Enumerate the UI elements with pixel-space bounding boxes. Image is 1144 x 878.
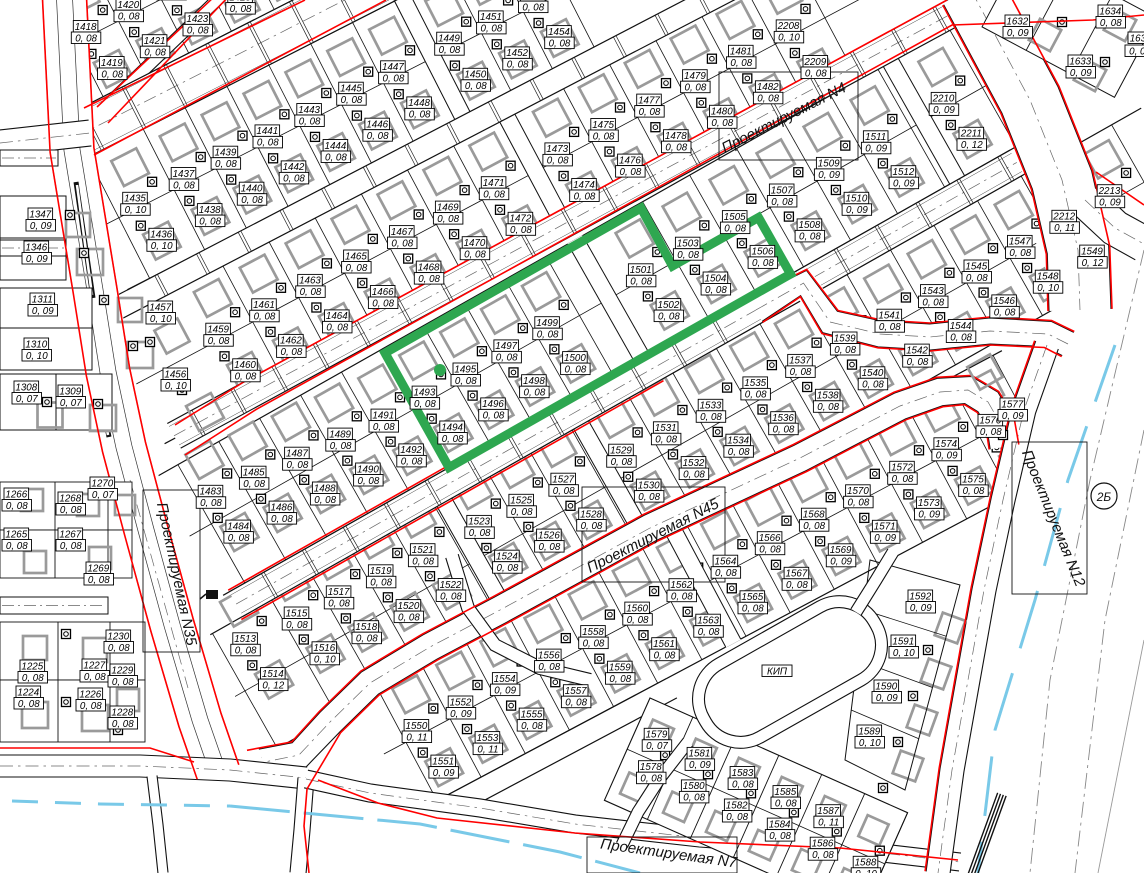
svg-text:1487: 1487 [286,449,308,460]
svg-text:0, 08: 0, 08 [511,507,533,518]
svg-text:0, 08: 0, 08 [330,441,352,452]
svg-text:0, 08: 0, 08 [757,94,779,105]
svg-text:1486: 1486 [271,502,293,513]
svg-text:0, 08: 0, 08 [325,152,347,163]
svg-text:0, 08: 0, 08 [803,521,825,532]
svg-text:0, 08: 0, 08 [241,195,263,206]
svg-text:1548: 1548 [1037,272,1059,283]
svg-text:0, 07: 0, 07 [646,741,668,752]
svg-text:1498: 1498 [523,376,545,387]
svg-text:2208: 2208 [777,21,800,32]
svg-text:0, 08: 0, 08 [60,541,82,552]
svg-text:0, 08: 0, 08 [980,427,1002,438]
svg-text:0, 08: 0, 08 [356,634,378,645]
svg-text:0, 08: 0, 08 [950,332,972,343]
svg-text:1457: 1457 [149,302,171,313]
svg-text:1584: 1584 [769,819,791,830]
svg-text:1506: 1506 [752,247,774,258]
svg-text:1421: 1421 [144,36,166,47]
svg-text:1484: 1484 [227,521,249,532]
svg-text:1567: 1567 [786,569,808,580]
svg-text:1591: 1591 [892,636,914,647]
svg-text:1441: 1441 [256,126,278,137]
svg-text:1544: 1544 [950,321,972,332]
svg-text:1587: 1587 [817,806,839,817]
svg-text:0, 08: 0, 08 [439,45,461,56]
svg-text:0, 08: 0, 08 [665,143,687,154]
svg-text:0, 08: 0, 08 [683,469,705,480]
svg-text:1488: 1488 [314,483,336,494]
svg-text:1475: 1475 [592,120,614,131]
svg-text:0, 08: 0, 08 [922,297,944,308]
svg-text:0, 08: 0, 08 [817,402,839,413]
svg-text:0, 08: 0, 08 [271,514,293,525]
svg-text:0, 08: 0, 08 [862,380,884,391]
svg-text:1479: 1479 [684,71,706,82]
svg-text:1266: 1266 [5,489,27,500]
svg-text:1569: 1569 [830,545,852,556]
svg-text:1446: 1446 [366,120,388,131]
svg-text:1586: 1586 [812,839,834,850]
svg-text:1634: 1634 [1099,6,1121,17]
svg-text:0, 08: 0, 08 [281,347,303,358]
svg-text:1536: 1536 [772,413,794,424]
svg-text:0, 08: 0, 08 [22,673,44,684]
svg-text:0, 08: 0, 08 [549,38,571,49]
svg-text:1451: 1451 [480,12,502,23]
svg-text:1495: 1495 [454,364,476,375]
svg-text:0, 08: 0, 08 [638,492,660,503]
svg-text:0, 08: 0, 08 [671,592,693,603]
svg-text:0, 12: 0, 12 [262,680,284,691]
svg-text:1229: 1229 [111,665,133,676]
svg-text:1549: 1549 [1081,246,1103,257]
svg-text:1493: 1493 [414,387,436,398]
svg-text:0, 08: 0, 08 [724,223,746,234]
svg-text:0, 08: 0, 08 [565,698,587,709]
svg-text:1226: 1226 [79,689,101,700]
svg-text:1436: 1436 [150,230,172,241]
svg-text:1492: 1492 [400,445,422,456]
svg-text:0, 08: 0, 08 [414,399,436,410]
svg-text:1482: 1482 [757,82,779,93]
svg-text:0, 08: 0, 08 [726,812,748,823]
svg-text:1462: 1462 [280,336,302,347]
svg-text:0, 08: 0, 08 [200,498,222,509]
svg-text:0, 08: 0, 08 [412,557,434,568]
svg-text:0, 10: 0, 10 [125,205,147,216]
svg-text:1499: 1499 [536,318,558,329]
svg-text:1542: 1542 [906,345,928,356]
svg-text:0, 08: 0, 08 [524,388,546,399]
svg-text:0, 08: 0, 08 [685,83,707,94]
svg-text:0, 08: 0, 08 [583,638,605,649]
svg-text:0, 08: 0, 08 [848,498,870,509]
svg-text:1473: 1473 [546,144,568,155]
svg-text:0, 08: 0, 08 [440,591,462,602]
svg-text:0, 08: 0, 08 [465,81,487,92]
svg-text:0, 09: 0, 09 [1002,411,1024,422]
svg-text:0, 09: 0, 09 [433,768,455,779]
svg-text:1419: 1419 [101,58,123,69]
svg-text:1466: 1466 [372,287,394,298]
svg-text:0, 09: 0, 09 [818,170,840,181]
svg-text:0, 08: 0, 08 [243,479,265,490]
svg-text:1557: 1557 [565,686,587,697]
svg-text:0, 08: 0, 08 [442,434,464,445]
svg-text:0, 09: 0, 09 [450,709,472,720]
svg-text:0, 08: 0, 08 [728,447,750,458]
svg-text:0, 08: 0, 08 [80,701,102,712]
svg-text:0, 08: 0, 08 [286,620,308,631]
svg-text:1310: 1310 [25,339,47,350]
svg-text:0, 08: 0, 08 [683,793,705,804]
svg-text:1510: 1510 [846,194,868,205]
svg-text:1588: 1588 [855,858,877,869]
svg-text:0, 08: 0, 08 [464,250,486,261]
svg-text:1504: 1504 [705,273,727,284]
svg-text:0, 08: 0, 08 [300,287,322,298]
svg-text:0, 08: 0, 08 [677,250,699,261]
svg-text:1468: 1468 [418,262,440,273]
svg-text:0, 07: 0, 07 [92,490,114,501]
svg-text:1448: 1448 [408,98,430,109]
svg-text:1564: 1564 [715,557,737,568]
svg-text:0, 08: 0, 08 [283,174,305,185]
svg-text:1554: 1554 [494,674,516,685]
svg-text:1552: 1552 [450,697,472,708]
svg-text:0, 08: 0, 08 [799,232,821,243]
svg-text:1347: 1347 [29,209,51,220]
svg-text:0, 08: 0, 08 [409,110,431,121]
svg-text:1230: 1230 [107,631,129,642]
svg-text:0, 08: 0, 08 [775,798,797,809]
svg-text:1423: 1423 [186,14,208,25]
svg-text:1496: 1496 [482,399,504,410]
svg-text:0, 08: 0, 08 [773,425,795,436]
svg-text:0, 08: 0, 08 [383,74,405,85]
svg-text:0, 09: 0, 09 [874,533,896,544]
svg-text:0, 09: 0, 09 [830,557,852,568]
svg-text:1534: 1534 [727,436,749,447]
svg-text:1437: 1437 [173,169,195,180]
svg-text:1570: 1570 [847,486,869,497]
svg-text:0, 08: 0, 08 [370,578,392,589]
svg-text:0, 08: 0, 08 [373,422,395,433]
svg-text:0, 08: 0, 08 [639,107,661,118]
svg-text:0, 08: 0, 08 [640,774,662,785]
svg-text:0, 08: 0, 08 [730,58,752,69]
svg-text:1563: 1563 [697,616,719,627]
svg-text:0, 12: 0, 12 [961,140,983,151]
svg-text:0, 08: 0, 08 [627,615,649,626]
svg-text:0, 0: 0, 0 [1129,46,1144,57]
svg-text:0, 11: 0, 11 [1054,223,1075,234]
svg-text:0, 08: 0, 08 [287,460,309,471]
svg-text:1532: 1532 [683,458,705,469]
svg-text:1491: 1491 [372,410,394,421]
svg-text:0, 08: 0, 08 [455,376,477,387]
svg-text:0, 08: 0, 08 [769,831,791,842]
svg-text:1509: 1509 [818,159,840,170]
svg-text:0, 08: 0, 08 [507,60,529,71]
svg-text:0, 08: 0, 08 [496,353,518,364]
svg-text:1461: 1461 [253,300,275,311]
svg-text:0, 08: 0, 08 [60,505,82,516]
svg-text:0, 08: 0, 08 [6,501,28,512]
svg-text:1513: 1513 [234,634,256,645]
svg-text:0, 08: 0, 08 [112,677,134,688]
svg-text:1477: 1477 [638,95,660,106]
svg-text:1572: 1572 [891,463,913,474]
svg-text:0, 08: 0, 08 [483,190,505,201]
svg-text:0, 08: 0, 08 [418,274,440,285]
svg-text:0, 08: 0, 08 [367,131,389,142]
svg-text:0, 08: 0, 08 [834,345,856,356]
svg-text:1507: 1507 [771,185,793,196]
svg-text:1583: 1583 [732,768,754,779]
svg-text:1518: 1518 [355,622,377,633]
svg-text:0, 08: 0, 08 [630,277,652,288]
svg-text:0, 09: 0, 09 [26,254,48,265]
svg-text:1489: 1489 [329,429,351,440]
svg-text:0, 09: 0, 09 [1007,28,1029,39]
svg-text:0, 08: 0, 08 [966,273,988,284]
svg-text:0, 08: 0, 08 [732,779,754,790]
svg-text:0, 08: 0, 08 [759,545,781,556]
svg-text:0, 08: 0, 08 [539,542,561,553]
svg-text:0, 08: 0, 08 [994,308,1016,319]
svg-text:1512: 1512 [893,167,915,178]
svg-text:0, 08: 0, 08 [75,33,97,44]
svg-text:0, 08: 0, 08 [497,563,519,574]
svg-text:0, 08: 0, 08 [101,69,123,80]
svg-text:1553: 1553 [477,733,499,744]
svg-text:0, 08: 0, 08 [161,0,183,1]
svg-text:1478: 1478 [665,131,687,142]
svg-text:1551: 1551 [432,756,454,767]
svg-text:1265: 1265 [5,529,27,540]
svg-text:1558: 1558 [582,627,604,638]
svg-text:0, 08: 0, 08 [326,323,348,334]
svg-text:0, 10: 0, 10 [150,314,172,325]
svg-text:0, 10: 0, 10 [1037,283,1059,294]
svg-text:1449: 1449 [438,34,460,45]
svg-text:1459: 1459 [207,325,229,336]
svg-text:1471: 1471 [483,178,505,189]
svg-text:1480: 1480 [711,107,733,118]
svg-text:1500: 1500 [564,353,586,364]
svg-text:0, 08: 0, 08 [398,612,420,623]
svg-text:0, 12: 0, 12 [1082,258,1104,269]
svg-text:0, 08: 0, 08 [1100,18,1122,29]
svg-text:1267: 1267 [59,529,81,540]
svg-text:1555: 1555 [521,709,543,720]
svg-text:0, 08: 0, 08 [469,528,491,539]
svg-text:0, 08: 0, 08 [745,390,767,401]
svg-text:1438: 1438 [199,205,221,216]
svg-text:0, 08: 0, 08 [173,180,195,191]
svg-text:2212: 2212 [1052,212,1075,223]
svg-text:0, 09: 0, 09 [910,603,932,614]
svg-text:0, 10: 0, 10 [859,738,881,749]
svg-text:1514: 1514 [262,669,284,680]
svg-text:0, 11: 0, 11 [477,744,498,755]
svg-text:0, 08: 0, 08 [187,26,209,37]
svg-text:1547: 1547 [1009,237,1031,248]
svg-text:1494: 1494 [441,422,463,433]
svg-text:0, 08: 0, 08 [547,156,569,167]
svg-text:1505: 1505 [724,212,746,223]
svg-text:0, 08: 0, 08 [314,495,336,506]
svg-text:1490: 1490 [357,464,379,475]
svg-text:1541: 1541 [878,311,900,322]
svg-text:1540: 1540 [862,368,884,379]
svg-text:1501: 1501 [630,265,652,276]
svg-text:1581: 1581 [689,749,711,760]
svg-text:0, 09: 0, 09 [918,510,940,521]
svg-text:0, 09: 0, 09 [865,144,887,155]
svg-text:1523: 1523 [468,517,490,528]
svg-text:1533: 1533 [700,401,722,412]
svg-text:1575: 1575 [962,475,984,486]
svg-text:1502: 1502 [658,300,680,311]
svg-text:0, 08: 0, 08 [1009,248,1031,259]
svg-text:0, 08: 0, 08 [574,191,596,202]
svg-text:1527: 1527 [552,475,574,486]
svg-text:0, 08: 0, 08 [346,263,368,274]
svg-text:0, 08: 0, 08 [481,24,503,35]
svg-text:0, 08: 0, 08 [742,604,764,615]
svg-text:1435: 1435 [124,194,146,205]
svg-text:2Б: 2Б [1096,490,1112,504]
svg-text:1578: 1578 [640,762,662,773]
svg-text:0, 08: 0, 08 [88,575,110,586]
svg-text:1443: 1443 [298,105,320,116]
svg-text:1535: 1535 [744,378,766,389]
svg-text:1346: 1346 [25,242,47,253]
svg-text:1524: 1524 [496,552,518,563]
svg-text:0, 08: 0, 08 [483,411,505,422]
svg-text:0, 08: 0, 08 [108,643,130,654]
svg-text:0, 11: 0, 11 [818,818,839,829]
svg-text:1270: 1270 [91,478,113,489]
svg-text:0, 08: 0, 08 [199,216,221,227]
svg-text:1454: 1454 [548,27,570,38]
svg-text:0, 08: 0, 08 [907,357,929,368]
svg-text:1560: 1560 [626,603,648,614]
svg-text:0, 08: 0, 08 [752,258,774,269]
svg-text:0, 09: 0, 09 [846,205,868,216]
svg-text:1526: 1526 [538,530,560,541]
svg-text:1503: 1503 [677,239,699,250]
svg-text:1582: 1582 [726,800,748,811]
svg-text:1445: 1445 [340,84,362,95]
svg-text:0, 10: 0, 10 [26,351,48,362]
svg-text:0, 08: 0, 08 [144,48,166,59]
svg-text:0, 09: 0, 09 [32,306,54,317]
svg-text:0, 08: 0, 08 [208,336,230,347]
svg-text:0, 08: 0, 08 [437,214,459,225]
svg-text:1442: 1442 [283,162,305,173]
svg-text:1565: 1565 [741,592,763,603]
svg-text:0, 08: 0, 08 [790,367,812,378]
svg-text:0, 08: 0, 08 [715,568,737,579]
svg-text:1483: 1483 [200,487,222,498]
svg-text:0, 08: 0, 08 [215,159,237,170]
svg-text:1440: 1440 [241,184,263,195]
svg-text:0, 08: 0, 08 [698,627,720,638]
svg-text:1464: 1464 [326,311,348,322]
svg-text:1311: 1311 [32,294,53,305]
svg-text:1585: 1585 [774,787,796,798]
svg-text:1592: 1592 [909,591,931,602]
svg-text:1508: 1508 [799,220,821,231]
svg-text:1521: 1521 [412,545,434,556]
svg-text:0, 08: 0, 08 [593,131,615,142]
svg-text:0, 08: 0, 08 [705,285,727,296]
svg-text:0, 08: 0, 08 [963,486,985,497]
svg-text:0, 08: 0, 08 [6,541,28,552]
svg-text:1579: 1579 [646,730,668,741]
svg-text:0, 10: 0, 10 [893,648,915,659]
svg-text:0, 08: 0, 08 [391,238,413,249]
svg-text:1470: 1470 [464,238,486,249]
svg-text:0, 08: 0, 08 [700,412,722,423]
svg-text:1497: 1497 [495,341,517,352]
svg-text:163: 163 [1130,33,1144,44]
svg-text:1589: 1589 [858,726,880,737]
svg-text:1268: 1268 [59,493,81,504]
svg-text:1476: 1476 [619,155,641,166]
svg-text:1580: 1580 [683,781,705,792]
svg-text:0, 11: 0, 11 [406,732,427,743]
svg-text:1481: 1481 [730,47,752,58]
svg-text:0, 10: 0, 10 [151,241,173,252]
svg-text:0, 08: 0, 08 [812,850,834,861]
svg-text:0, 08: 0, 08 [655,435,677,446]
svg-text:0, 08: 0, 08 [879,322,901,333]
svg-text:0, 09: 0, 09 [876,693,898,704]
svg-text:1525: 1525 [510,496,532,507]
svg-text:0, 08: 0, 08 [235,372,257,383]
svg-text:0, 09: 0, 09 [494,685,516,696]
svg-text:1467: 1467 [391,227,413,238]
svg-text:1308: 1308 [15,382,37,393]
svg-text:0, 08: 0, 08 [553,486,575,497]
svg-text:0, 09: 0, 09 [1070,68,1092,79]
svg-text:1574: 1574 [935,439,957,450]
svg-text:0, 09: 0, 09 [933,105,955,116]
svg-text:0, 08: 0, 08 [611,457,633,468]
svg-text:2209: 2209 [803,57,826,68]
svg-text:1590: 1590 [875,681,897,692]
svg-text:0, 08: 0, 08 [228,533,250,544]
svg-text:0, 08: 0, 08 [341,95,363,106]
svg-text:0, 08: 0, 08 [328,599,350,610]
svg-text:0, 08: 0, 08 [654,651,676,662]
svg-text:1528: 1528 [580,509,602,520]
svg-text:0, 09: 0, 09 [689,760,711,771]
svg-text:0, 08: 0, 08 [358,476,380,487]
svg-text:0, 08: 0, 08 [230,4,252,15]
svg-text:1568: 1568 [803,510,825,521]
svg-text:0, 08: 0, 08 [18,699,40,710]
svg-text:1520: 1520 [398,601,420,612]
svg-text:1571: 1571 [874,522,896,533]
svg-text:0, 08: 0, 08 [372,298,394,309]
svg-text:1566: 1566 [759,533,781,544]
